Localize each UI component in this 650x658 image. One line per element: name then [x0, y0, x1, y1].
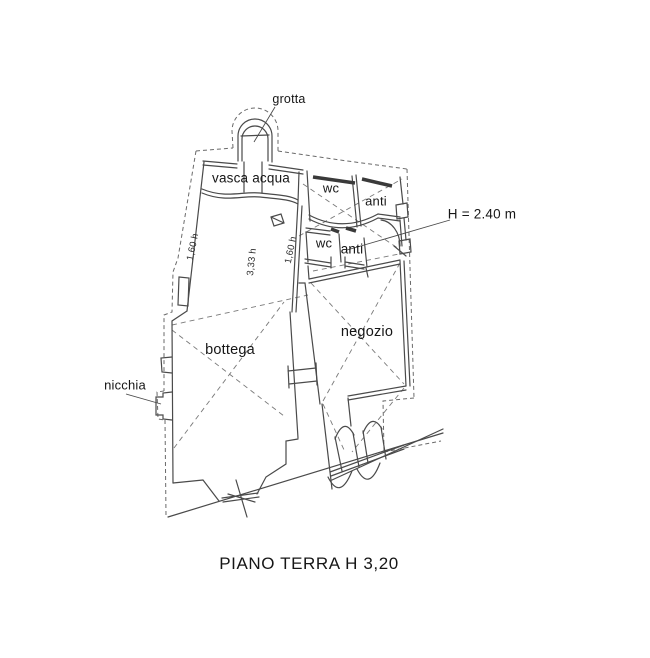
label-bottega: bottega [205, 342, 255, 358]
label-height-note: H = 2.40 m [448, 207, 516, 222]
passage [288, 363, 317, 388]
label-nicchia: nicchia [104, 378, 146, 393]
negozio-right-wall [400, 261, 410, 386]
walls [156, 119, 443, 517]
label-grotta: grotta [272, 92, 305, 106]
curved-wall [309, 214, 378, 228]
label-negozio: negozio [341, 324, 393, 340]
street-line [168, 433, 443, 517]
nicchia-shape [156, 392, 172, 420]
diagonal-survey-lines [172, 179, 404, 452]
label-vasca-acqua: vasca acqua [212, 171, 290, 186]
floor-plan-page: grotta vasca acqua wc anti H = 2.40 m wc… [0, 0, 650, 658]
window-left [178, 277, 189, 306]
label-anti-lower: anti [341, 242, 364, 257]
label-wc-upper: wc [323, 181, 339, 196]
hatch-symbol [271, 214, 284, 226]
label-anti-upper: anti [365, 194, 387, 209]
plan-title: PIANO TERRA H 3,20 [219, 554, 399, 574]
door-arc [363, 421, 382, 433]
label-wc-lower: wc [316, 236, 332, 251]
